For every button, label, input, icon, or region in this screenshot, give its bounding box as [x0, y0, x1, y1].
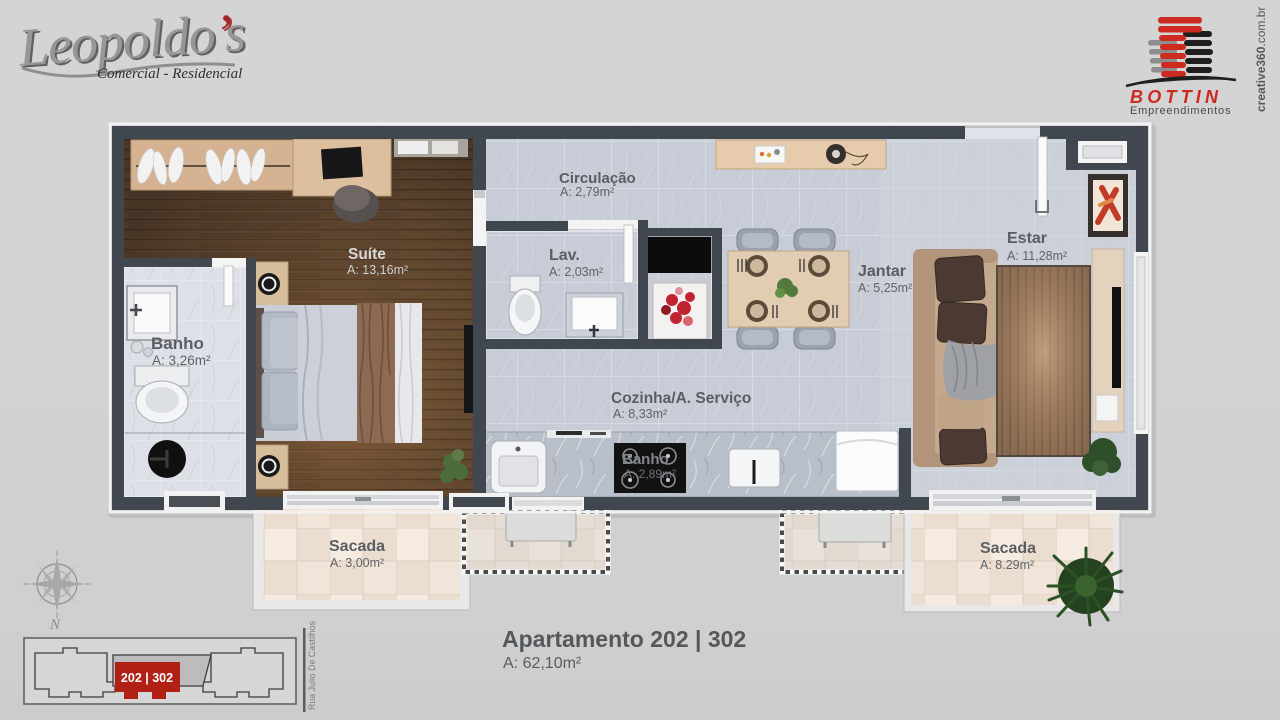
svg-text:Cozinha/A. Serviço: Cozinha/A. Serviço [611, 390, 751, 407]
svg-text:A: 5,25m²: A: 5,25m² [858, 281, 912, 295]
svg-text:Sacada: Sacada [980, 540, 1036, 557]
svg-text:A: 2,03m²: A: 2,03m² [549, 265, 603, 279]
svg-text:Apartamento 202 | 302: Apartamento 202 | 302 [502, 626, 746, 652]
svg-text:BOTTIN: BOTTIN [1130, 87, 1222, 107]
svg-text:202 | 302: 202 | 302 [121, 671, 173, 685]
svg-text:A: 3,26m²: A: 3,26m² [152, 353, 211, 368]
svg-text:Empreendimentos: Empreendimentos [1130, 105, 1231, 117]
svg-text:Banho: Banho [622, 451, 669, 468]
svg-text:A: 62,10m²: A: 62,10m² [503, 655, 582, 672]
svg-text:Lav.: Lav. [549, 247, 580, 264]
svg-text:A: 11,28m²: A: 11,28m² [1007, 249, 1067, 263]
svg-text:Jantar: Jantar [858, 263, 906, 280]
svg-text:Comercial - Residencial: Comercial - Residencial [97, 66, 242, 82]
svg-text:A: 8,33m²: A: 8,33m² [613, 407, 667, 421]
svg-text:A: 8.29m²: A: 8.29m² [980, 558, 1034, 572]
svg-text:Sacada: Sacada [329, 538, 385, 555]
svg-text:Banho: Banho [151, 334, 204, 353]
svg-text:A: 3,00m²: A: 3,00m² [330, 556, 384, 570]
svg-text:Rua Julio De Castilhos: Rua Julio De Castilhos [307, 620, 317, 710]
svg-text:A: 2,89m²: A: 2,89m² [624, 467, 676, 481]
svg-text:A: 13,16m²: A: 13,16m² [347, 263, 408, 277]
svg-text:A: 2,79m²: A: 2,79m² [560, 185, 614, 199]
svg-text:N: N [49, 617, 61, 633]
svg-text:Estar: Estar [1007, 230, 1047, 247]
svg-text:Suíte: Suíte [348, 246, 386, 263]
svg-text:creative360.com.br: creative360.com.br [1254, 7, 1268, 112]
